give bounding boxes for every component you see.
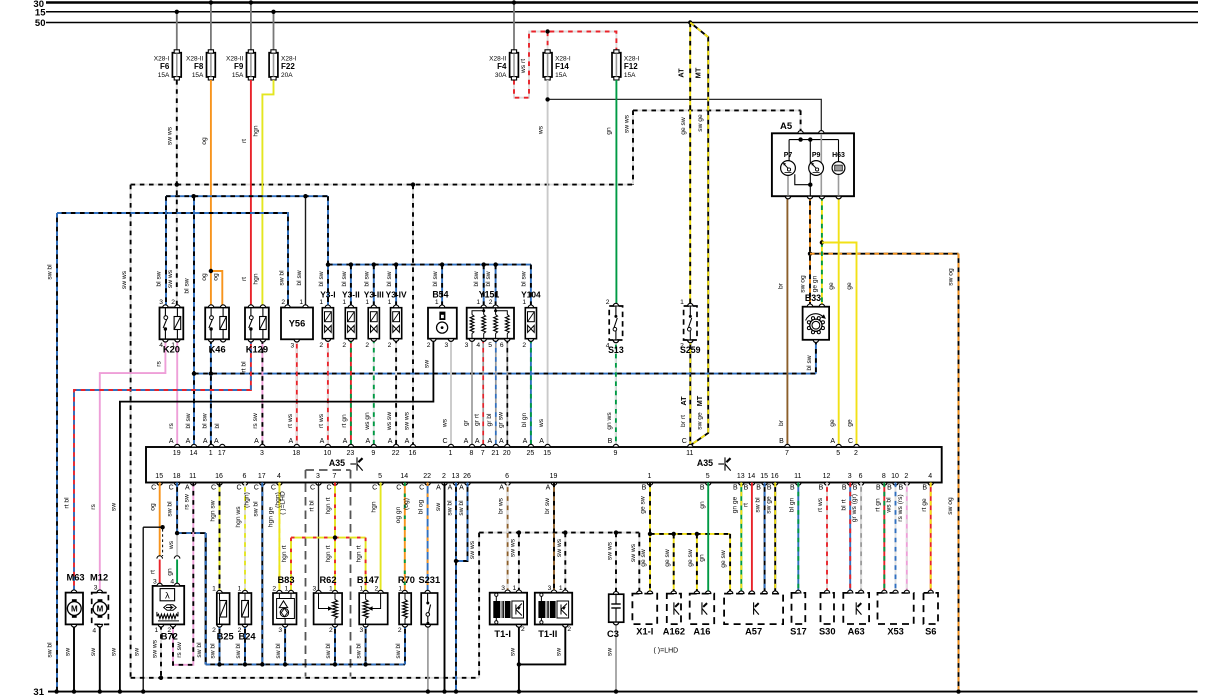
svg-text:A: A: [448, 485, 453, 492]
svg-text:sw ws: sw ws: [623, 114, 630, 133]
svg-text:F14: F14: [555, 62, 569, 71]
svg-text:rt bl: rt bl: [241, 361, 248, 373]
svg-text:C: C: [211, 485, 216, 492]
svg-text:19: 19: [173, 450, 181, 457]
svg-text:1: 1: [299, 299, 303, 306]
svg-text:rs sw: rs sw: [252, 413, 259, 429]
svg-text:S259: S259: [680, 345, 701, 355]
svg-text:1: 1: [513, 585, 517, 592]
svg-text:B: B: [887, 485, 892, 492]
svg-text:3: 3: [291, 343, 295, 350]
svg-text:C: C: [254, 485, 259, 492]
svg-text:ge sw: ge sw: [664, 549, 671, 567]
svg-text:1: 1: [435, 299, 439, 306]
svg-text:2: 2: [567, 626, 571, 633]
svg-text:1: 1: [319, 299, 323, 306]
svg-text:5: 5: [378, 473, 382, 480]
svg-text:F9: F9: [234, 62, 244, 71]
svg-text:1: 1: [449, 450, 453, 457]
svg-text:hgn rt: hgn rt: [325, 545, 332, 562]
svg-text:22: 22: [392, 450, 400, 457]
svg-text:C: C: [310, 485, 315, 492]
svg-text:bl gn: bl gn: [521, 412, 528, 427]
svg-text:30A: 30A: [495, 72, 507, 79]
svg-text:sw bl: sw bl: [235, 643, 242, 659]
svg-text:ws: ws: [538, 418, 545, 428]
svg-text:1: 1: [212, 586, 216, 593]
svg-text:rt ws: rt ws: [318, 413, 325, 428]
svg-text:sw: sw: [110, 503, 117, 511]
svg-text:1: 1: [342, 299, 346, 306]
svg-text:A: A: [343, 438, 348, 445]
svg-text:sw bl: sw bl: [253, 501, 260, 517]
svg-text:br ws: br ws: [498, 497, 505, 514]
svg-text:13: 13: [452, 473, 460, 480]
svg-text:rt: rt: [743, 503, 750, 507]
svg-text:sw ws: sw ws: [167, 126, 174, 145]
svg-text:3: 3: [848, 473, 852, 480]
svg-text:P7: P7: [784, 152, 793, 159]
svg-text:A35: A35: [697, 458, 713, 468]
svg-text:2: 2: [281, 299, 285, 306]
svg-text:22: 22: [423, 473, 431, 480]
svg-text:B33: B33: [805, 293, 821, 303]
svg-text:bl sw: bl sw: [296, 270, 303, 285]
svg-text:( )=LHD: ( )=LHD: [654, 648, 679, 655]
svg-text:3: 3: [313, 586, 317, 593]
svg-text:ge: ge: [847, 419, 854, 427]
svg-text:bl sw: bl sw: [386, 271, 393, 286]
svg-text:1: 1: [285, 586, 289, 593]
svg-text:K46: K46: [209, 345, 226, 355]
svg-text:rt bl: rt bl: [309, 500, 316, 512]
svg-text:20A: 20A: [281, 72, 293, 79]
svg-text:λ: λ: [165, 591, 170, 602]
svg-text:AT: AT: [679, 396, 688, 406]
svg-text:C: C: [419, 485, 424, 492]
svg-text:gn: gn: [699, 501, 706, 509]
svg-text:sw ge: sw ge: [697, 114, 704, 132]
svg-text:3: 3: [316, 473, 320, 480]
svg-text:Y104: Y104: [521, 290, 541, 300]
svg-text:A: A: [185, 485, 190, 492]
svg-text:A5: A5: [780, 121, 793, 132]
svg-text:A: A: [365, 438, 370, 445]
svg-text:bl sw: bl sw: [341, 271, 348, 286]
svg-text:hgn: hgn: [253, 125, 260, 136]
svg-text:A35: A35: [329, 458, 345, 468]
svg-text:ge sw: ge sw: [687, 549, 694, 567]
svg-text:og: og: [150, 503, 157, 511]
svg-text:sw bl: sw bl: [167, 501, 174, 517]
svg-text:10: 10: [324, 450, 332, 457]
svg-text:3: 3: [159, 299, 163, 306]
svg-text:rt ws: rt ws: [287, 413, 294, 428]
svg-text:2: 2: [522, 342, 526, 349]
svg-text:1: 1: [476, 299, 480, 306]
svg-text:MT: MT: [695, 395, 704, 406]
svg-text:F22: F22: [281, 62, 295, 71]
svg-text:rt: rt: [150, 570, 157, 574]
svg-text:gr rt: gr rt: [473, 414, 480, 426]
svg-text:S6: S6: [925, 627, 936, 637]
svg-text:B83: B83: [277, 575, 294, 585]
svg-text:og: og: [201, 137, 208, 145]
svg-text:1: 1: [648, 473, 652, 480]
svg-text:15: 15: [760, 473, 768, 480]
svg-text:A: A: [830, 438, 835, 445]
svg-text:2: 2: [319, 342, 323, 349]
svg-text:5: 5: [836, 450, 840, 457]
svg-text:14: 14: [190, 450, 198, 457]
svg-text:sw: sw: [556, 648, 563, 656]
svg-text:sw bl: sw bl: [356, 643, 363, 659]
svg-text:15A: 15A: [192, 72, 204, 79]
svg-text:gn: gn: [167, 568, 174, 576]
svg-text:hgn ws: hgn ws: [235, 506, 242, 528]
svg-text:sw ws: sw ws: [607, 541, 614, 560]
svg-text:11: 11: [794, 473, 801, 480]
svg-text:bl sw: bl sw: [318, 271, 325, 286]
svg-text:3: 3: [445, 342, 449, 349]
svg-text:sw ws: sw ws: [510, 538, 517, 557]
svg-text:ws: ws: [441, 418, 448, 428]
svg-text:sw ge: sw ge: [697, 412, 704, 430]
svg-text:B: B: [853, 485, 858, 492]
svg-text:rt: rt: [241, 277, 248, 281]
svg-text:2: 2: [398, 627, 402, 634]
svg-text:2: 2: [171, 299, 175, 306]
svg-text:gn ge: gn ge: [731, 496, 738, 513]
svg-text:A: A: [288, 438, 293, 445]
svg-text:M: M: [97, 605, 104, 614]
svg-text:F8: F8: [194, 62, 204, 71]
svg-text:hgn rt: hgn rt: [325, 497, 332, 514]
svg-text:rt bl: rt bl: [64, 497, 71, 509]
svg-text:gn ws: gn ws: [606, 412, 613, 430]
svg-text:1: 1: [155, 627, 159, 634]
svg-text:B25: B25: [217, 632, 234, 642]
svg-text:Y151: Y151: [479, 290, 500, 300]
svg-text:B: B: [767, 485, 772, 492]
svg-text:S30: S30: [819, 627, 836, 637]
svg-text:1: 1: [329, 586, 333, 593]
svg-text:br sw: br sw: [544, 498, 551, 514]
svg-text:2: 2: [388, 342, 392, 349]
svg-text:10: 10: [891, 473, 899, 480]
svg-text:rs: rs: [90, 504, 97, 510]
svg-text:hgn: hgn: [371, 501, 378, 512]
svg-text:2: 2: [329, 627, 333, 634]
svg-text:H63: H63: [832, 152, 845, 159]
svg-text:bl rt: bl rt: [840, 499, 847, 510]
svg-text:bl sw: bl sw: [185, 413, 192, 428]
svg-text:A: A: [546, 485, 551, 492]
svg-text:M12: M12: [90, 573, 108, 583]
svg-text:hgn ge: hgn ge: [267, 506, 274, 527]
svg-text:bl gn: bl gn: [788, 497, 795, 512]
svg-text:B: B: [700, 485, 705, 492]
svg-text:sw bl: sw bl: [458, 500, 465, 516]
svg-text:31: 31: [33, 687, 44, 697]
svg-text:15: 15: [35, 7, 46, 18]
svg-text:25: 25: [527, 450, 535, 457]
svg-text:ge: ge: [828, 282, 835, 290]
svg-text:A: A: [254, 438, 259, 445]
svg-text:hgn: hgn: [252, 273, 259, 284]
svg-text:9: 9: [613, 450, 617, 457]
svg-text:3: 3: [501, 585, 505, 592]
svg-text:C: C: [236, 485, 241, 492]
svg-text:ge gn: ge gn: [812, 275, 819, 292]
svg-text:2: 2: [427, 342, 431, 349]
svg-text:4: 4: [170, 578, 174, 585]
svg-text:sw: sw: [424, 360, 431, 368]
svg-text:15: 15: [543, 450, 551, 457]
svg-text:2: 2: [365, 342, 369, 349]
svg-text:17: 17: [218, 450, 226, 457]
svg-text:rt: rt: [241, 139, 248, 143]
svg-text:rt gn: rt gn: [874, 498, 881, 512]
svg-text:X1-I: X1-I: [636, 627, 653, 637]
svg-text:2: 2: [854, 450, 858, 457]
svg-text:hgn rt: hgn rt: [281, 545, 288, 562]
svg-text:C: C: [396, 485, 401, 492]
svg-text:sw og: sw og: [800, 275, 807, 293]
svg-text:Y3-IV: Y3-IV: [386, 290, 407, 300]
svg-text:A: A: [459, 485, 464, 492]
svg-text:B: B: [733, 485, 738, 492]
svg-text:B: B: [779, 438, 784, 445]
svg-text:bl sw: bl sw: [364, 271, 371, 286]
svg-text:rt ws: rt ws: [817, 497, 824, 512]
svg-text:ge sw: ge sw: [640, 496, 647, 514]
svg-text:4: 4: [928, 473, 932, 480]
svg-text:br rt: br rt: [680, 415, 687, 427]
svg-text:bl sw: bl sw: [184, 278, 191, 293]
svg-text:hgn sw: hgn sw: [210, 500, 217, 521]
svg-text:bl sw: bl sw: [485, 271, 492, 286]
svg-text:14: 14: [748, 473, 756, 480]
svg-text:B: B: [842, 485, 847, 492]
svg-text:rs: rs: [155, 361, 162, 367]
svg-text:K129: K129: [246, 345, 268, 355]
svg-text:sw bl: sw bl: [325, 643, 332, 659]
svg-text:A: A: [186, 438, 191, 445]
svg-text:6: 6: [859, 473, 863, 480]
svg-text:og: og: [213, 273, 220, 281]
svg-text:C: C: [326, 485, 331, 492]
svg-text:2: 2: [904, 473, 908, 480]
svg-text:M: M: [71, 605, 78, 614]
svg-text:(hgn): (hgn): [243, 492, 250, 508]
svg-text:ws rt: ws rt: [520, 59, 527, 74]
svg-text:bl sw: bl sw: [806, 355, 813, 370]
svg-text:A: A: [499, 485, 504, 492]
svg-text:A: A: [405, 438, 410, 445]
svg-text:7: 7: [333, 473, 337, 480]
svg-text:sw bl: sw bl: [275, 643, 282, 659]
svg-text:R62: R62: [319, 575, 336, 585]
svg-text:rs sw: rs sw: [183, 494, 190, 510]
svg-text:4: 4: [476, 342, 480, 349]
svg-text:sw: sw: [607, 648, 614, 656]
svg-text:B: B: [756, 485, 761, 492]
svg-text:S13: S13: [608, 345, 624, 355]
svg-text:8: 8: [882, 473, 886, 480]
svg-text:sw bl: sw bl: [755, 497, 762, 513]
svg-text:sw: sw: [509, 648, 516, 656]
svg-text:16: 16: [771, 473, 779, 480]
svg-text:br: br: [778, 419, 785, 426]
svg-text:2: 2: [375, 586, 379, 593]
svg-text:og gn: og gn: [395, 506, 402, 523]
svg-text:P9: P9: [812, 152, 821, 159]
svg-text:A: A: [487, 438, 492, 445]
svg-text:bl sw: bl sw: [520, 271, 527, 286]
svg-text:19: 19: [550, 473, 558, 480]
svg-text:20: 20: [503, 450, 511, 457]
svg-text:A: A: [475, 438, 480, 445]
svg-text:1: 1: [209, 450, 213, 457]
svg-text:rs: rs: [168, 423, 175, 429]
svg-text:sw: sw: [134, 648, 141, 656]
svg-text:bl sw: bl sw: [432, 271, 439, 286]
svg-text:X53: X53: [887, 627, 904, 637]
svg-text:ws bl: ws bl: [886, 497, 893, 514]
svg-text:sw: sw: [90, 648, 97, 656]
svg-text:sw ws: sw ws: [630, 543, 637, 562]
svg-text:11: 11: [686, 450, 693, 457]
svg-text:B: B: [898, 485, 903, 492]
svg-text:A: A: [499, 438, 504, 445]
svg-text:sw ws: sw ws: [152, 639, 159, 658]
svg-text:A: A: [464, 438, 469, 445]
svg-text:A: A: [523, 438, 528, 445]
svg-text:ge: ge: [846, 282, 853, 290]
svg-text:Y3-II: Y3-II: [342, 290, 360, 300]
svg-text:br: br: [777, 282, 784, 289]
svg-text:12: 12: [823, 473, 831, 480]
svg-text:26: 26: [463, 473, 471, 480]
svg-text:B: B: [642, 485, 647, 492]
svg-text:bl: bl: [214, 423, 221, 429]
svg-text:Y3-I: Y3-I: [320, 290, 335, 300]
svg-text:18: 18: [292, 450, 300, 457]
svg-text:3: 3: [260, 450, 264, 457]
svg-text:M63: M63: [66, 573, 84, 583]
svg-text:sw ws: sw ws: [167, 269, 174, 288]
svg-text:B72: B72: [161, 632, 178, 642]
svg-text:15A: 15A: [232, 72, 244, 79]
svg-text:23: 23: [347, 450, 355, 457]
svg-text:gn: gn: [698, 554, 705, 562]
svg-text:( )=LHD: ( )=LHD: [280, 491, 287, 515]
svg-text:bl sw: bl sw: [156, 271, 163, 286]
svg-text:A162: A162: [663, 627, 685, 637]
svg-text:sw bl: sw bl: [210, 643, 217, 659]
svg-text:B: B: [744, 485, 749, 492]
svg-text:21: 21: [491, 450, 499, 457]
svg-text:gn: gn: [606, 127, 613, 135]
svg-text:ws sw: ws sw: [386, 412, 393, 431]
svg-text:1: 1: [522, 299, 526, 306]
svg-text:A57: A57: [745, 627, 762, 637]
svg-text:8: 8: [470, 450, 474, 457]
svg-text:Y56: Y56: [289, 319, 306, 329]
svg-text:B: B: [876, 485, 881, 492]
svg-text:2: 2: [212, 627, 216, 634]
svg-text:A: A: [539, 438, 544, 445]
svg-text:A: A: [388, 438, 393, 445]
svg-text:A16: A16: [693, 627, 710, 637]
svg-text:B147: B147: [357, 575, 379, 585]
svg-text:3: 3: [94, 585, 98, 592]
svg-text:Y3-III: Y3-III: [364, 290, 384, 300]
svg-text:A: A: [169, 438, 174, 445]
svg-text:A: A: [214, 438, 219, 445]
svg-text:1: 1: [388, 299, 392, 306]
svg-text:sw bl: sw bl: [446, 500, 453, 516]
svg-text:7: 7: [785, 450, 789, 457]
svg-text:sw bl: sw bl: [196, 642, 203, 658]
svg-text:MT: MT: [693, 67, 702, 78]
svg-text:2: 2: [442, 473, 446, 480]
svg-text:4: 4: [277, 473, 281, 480]
svg-text:1: 1: [398, 586, 402, 593]
svg-text:18: 18: [173, 473, 181, 480]
svg-text:C: C: [848, 438, 853, 445]
svg-text:gr: gr: [462, 419, 469, 426]
svg-text:S231: S231: [418, 575, 440, 585]
svg-text:sw: sw: [110, 648, 117, 656]
svg-text:B: B: [790, 485, 795, 492]
svg-text:K20: K20: [163, 345, 180, 355]
svg-text:rt gn: rt gn: [341, 414, 348, 428]
svg-text:ge sw: ge sw: [720, 550, 727, 568]
svg-text:3: 3: [153, 578, 157, 585]
svg-text:C: C: [682, 438, 687, 445]
svg-text:C: C: [151, 485, 156, 492]
svg-text:2: 2: [489, 299, 493, 306]
svg-text:bl sw: bl sw: [201, 413, 208, 428]
svg-text:5: 5: [706, 473, 710, 480]
svg-text:(og): (og): [403, 498, 410, 510]
svg-text:13: 13: [737, 473, 745, 480]
svg-text:ge sw: ge sw: [680, 117, 687, 135]
svg-text:sw ws: sw ws: [556, 538, 563, 557]
svg-text:3: 3: [465, 342, 469, 349]
svg-text:1: 1: [360, 586, 364, 593]
svg-text:bl sw: bl sw: [473, 271, 480, 286]
svg-text:ge: ge: [829, 419, 836, 427]
svg-text:rs ws (rs): rs ws (rs): [897, 494, 904, 522]
svg-text:3: 3: [548, 585, 552, 592]
svg-text:3: 3: [360, 627, 364, 634]
svg-text:sw ge: sw ge: [765, 496, 772, 514]
svg-text:sw bl: sw bl: [46, 642, 53, 658]
svg-text:15A: 15A: [624, 72, 636, 79]
svg-text:A: A: [203, 438, 208, 445]
svg-text:3: 3: [278, 627, 282, 634]
svg-text:gr bl: gr bl: [486, 413, 493, 427]
svg-text:11: 11: [189, 473, 196, 480]
svg-text:1: 1: [238, 586, 242, 593]
svg-text:C: C: [271, 485, 276, 492]
svg-text:1: 1: [559, 585, 563, 592]
svg-text:ws gn: ws gn: [364, 412, 371, 431]
svg-text:ge sw: ge sw: [640, 549, 647, 567]
